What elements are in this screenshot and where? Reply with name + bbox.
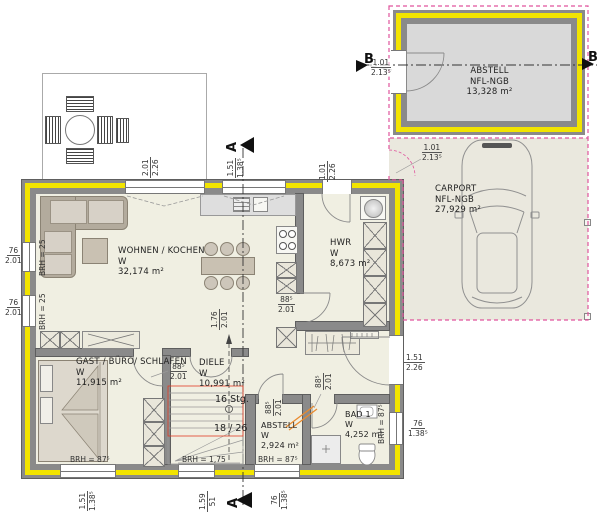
bad-window bbox=[389, 412, 403, 445]
pillow bbox=[40, 365, 53, 392]
dim-gast-window: 1.51 1.38⁵ bbox=[78, 489, 97, 513]
dim-back-door: 1.01 2.26 bbox=[318, 161, 337, 182]
dim-door-living: 1.76 2.01 bbox=[210, 309, 229, 330]
floor-plan-canvas: WOHNEN / KOCHEN W 32,174 m² HWR W 8,673 … bbox=[0, 0, 601, 515]
shower bbox=[311, 435, 341, 464]
burner bbox=[279, 242, 287, 250]
sofa-cushion bbox=[50, 200, 87, 224]
sill-gast: BRH = 87⁵ bbox=[70, 455, 110, 464]
dining-chair bbox=[236, 242, 250, 256]
sofa-cushion bbox=[44, 254, 72, 275]
room-label-abstell: ABSTELL W 2,924 m² bbox=[261, 421, 299, 451]
sill-bad: BRH = 87⁵ bbox=[377, 404, 386, 444]
terrace-chair-bottom bbox=[66, 148, 94, 164]
back-door-opening bbox=[322, 180, 352, 194]
gast-wardrobe bbox=[143, 422, 165, 446]
sill-abstell: BRH = 87⁵ bbox=[258, 455, 298, 464]
dim-carport-opening: 1.01 2.13⁵ bbox=[420, 143, 444, 162]
carport-floor-upper bbox=[389, 138, 588, 180]
dining-table bbox=[201, 257, 255, 275]
terrace-door-window bbox=[125, 180, 205, 194]
sill-left-1: BRH = 25 bbox=[38, 239, 47, 276]
entrance-door-opening bbox=[389, 335, 403, 385]
burner bbox=[279, 230, 287, 238]
wall-living-gast-b bbox=[163, 349, 190, 356]
dining-chair bbox=[204, 276, 218, 290]
carport-post bbox=[584, 313, 591, 320]
room-label-wohnen: WOHNEN / KOCHEN W 32,174 m² bbox=[118, 246, 205, 278]
dim-door-bad: 88⁵ 2.01 bbox=[314, 371, 333, 392]
burner bbox=[288, 230, 296, 238]
stairs-rise-run-label: 18 / 26 bbox=[214, 423, 247, 434]
diele-window bbox=[178, 464, 215, 478]
dim-door-gast: 88⁵ 2.01 bbox=[168, 362, 189, 381]
hall-shelf bbox=[350, 331, 379, 339]
pillow bbox=[40, 397, 53, 424]
hall-cabinet bbox=[276, 327, 297, 348]
sofa-cushion bbox=[44, 231, 72, 253]
wall-living-gast-a bbox=[36, 349, 133, 356]
sill-diele: BRH = 1,75 bbox=[182, 455, 226, 464]
gast-wardrobe bbox=[143, 398, 165, 422]
section-marker-b-left: B bbox=[364, 52, 374, 67]
carport-post bbox=[584, 219, 591, 226]
kitchen-drainer bbox=[233, 197, 250, 212]
tv-cabinet-box bbox=[60, 331, 80, 349]
abstell-window bbox=[254, 464, 300, 478]
washer-drum bbox=[364, 199, 383, 218]
dining-chair bbox=[236, 276, 250, 290]
dim-abstell-window: 76 1.38⁵ bbox=[270, 488, 289, 512]
terrace-chair-top bbox=[66, 96, 94, 112]
gast-window bbox=[60, 464, 116, 478]
kitchen-cabinet bbox=[276, 262, 297, 278]
dining-chair bbox=[220, 242, 234, 256]
dim-diele-window: 1.59 51 bbox=[198, 491, 217, 512]
hwr-cabinet bbox=[363, 276, 387, 303]
tv-sideboard bbox=[82, 331, 140, 349]
terrace-table bbox=[65, 115, 95, 145]
dim-entrance-door: 1.51 2.26 bbox=[404, 353, 425, 372]
stairs-count-label: 16 Stg. bbox=[215, 394, 249, 405]
room-label-garage: ABSTELL NFL-NGB 13,328 m² bbox=[432, 66, 547, 98]
wall-abstell-bad bbox=[303, 395, 310, 464]
washing-machine bbox=[360, 196, 386, 220]
dim-left-window-2: 76 2.01 bbox=[3, 298, 24, 317]
garage-door-opening bbox=[391, 50, 406, 94]
dim-bad-window: 76 1.38⁵ bbox=[406, 419, 430, 438]
dining-chair bbox=[220, 276, 234, 290]
dim-door-abstell: 88⁵ 2.01 bbox=[264, 397, 283, 418]
sill-left-2: BRH = 25 bbox=[38, 293, 47, 330]
dim-kitchen-window: 1.51 1.38⁵ bbox=[226, 156, 245, 180]
dim-terrace-door: 2.01 2.26 bbox=[141, 157, 160, 178]
room-label-carport: CARPORT NFL-NGB 27,929 m² bbox=[435, 184, 481, 216]
section-marker-a-bottom: A bbox=[226, 498, 241, 508]
burner bbox=[288, 242, 296, 250]
terrace-chair-right-2 bbox=[116, 118, 129, 143]
wall-abstell-top-b bbox=[283, 395, 303, 403]
wall-bad-top bbox=[335, 395, 389, 403]
kitchen-sink bbox=[253, 197, 268, 212]
dim-door-hwr: 88⁵ 2.01 bbox=[276, 295, 297, 314]
dim-left-window-1: 76 2.01 bbox=[3, 246, 24, 265]
room-label-diele: DIELE W 10,991 m² bbox=[199, 358, 245, 390]
tv-cabinet-box bbox=[40, 331, 60, 349]
section-marker-b-right: B bbox=[588, 50, 598, 65]
coffee-table bbox=[82, 238, 108, 264]
terrace-chair-left bbox=[45, 116, 61, 144]
wall-living-diele bbox=[232, 349, 248, 356]
stove bbox=[276, 226, 298, 254]
section-marker-a-top: A bbox=[225, 142, 240, 152]
kitchen-window bbox=[222, 180, 286, 194]
room-label-hwr: HWR W 8,673 m² bbox=[330, 238, 370, 270]
gast-wardrobe bbox=[143, 446, 165, 467]
dining-chair bbox=[204, 242, 218, 256]
left-window-2 bbox=[22, 295, 36, 327]
kitchen-cabinet bbox=[276, 278, 297, 294]
sofa-cushion bbox=[88, 200, 124, 224]
left-window-1 bbox=[22, 242, 36, 272]
terrace-chair-right bbox=[97, 116, 113, 144]
carport-floor bbox=[403, 180, 588, 320]
hwr-cabinet bbox=[363, 303, 387, 327]
